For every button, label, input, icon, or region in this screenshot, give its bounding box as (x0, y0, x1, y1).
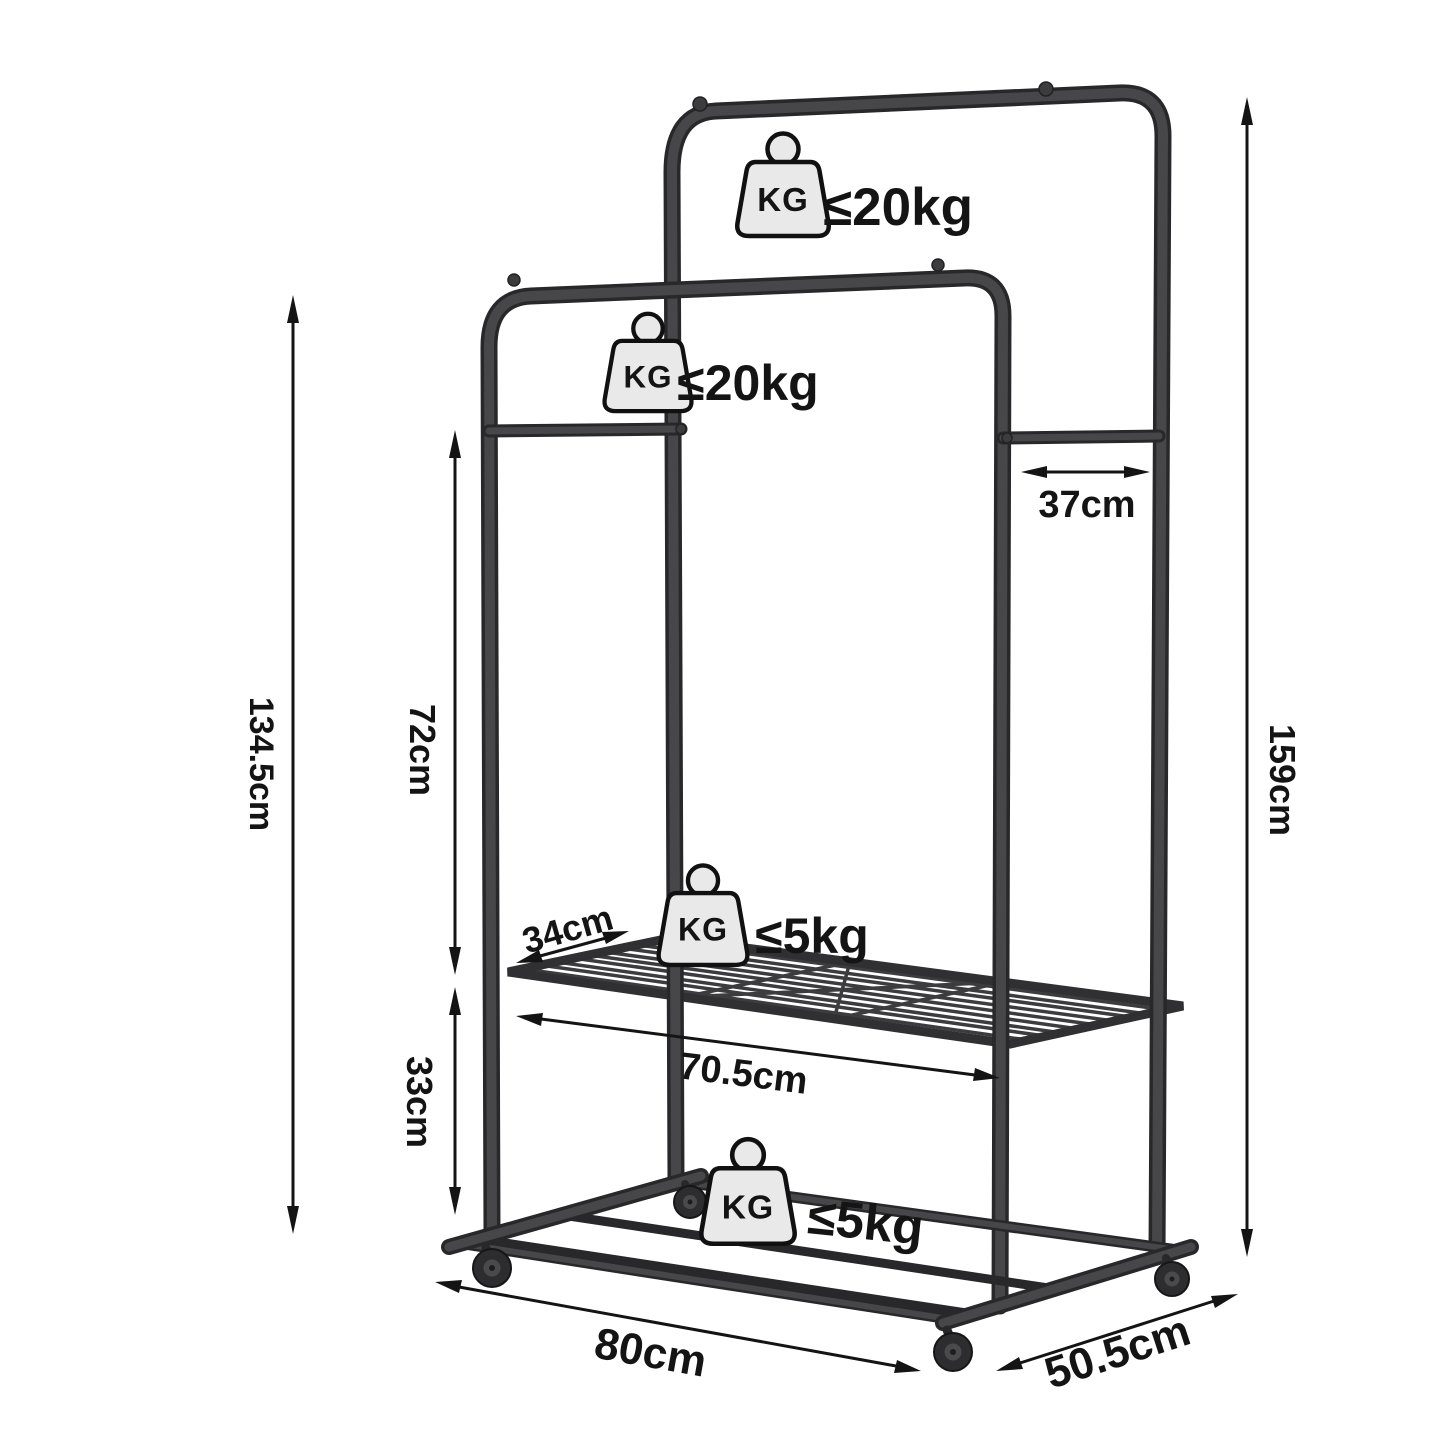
dim-base-depth-label: 50.5cm (1039, 1306, 1196, 1399)
side-crossbars (489, 424, 1159, 443)
dim-height-front-label: 134.5cm (242, 697, 280, 831)
rail-screw-knob (932, 259, 944, 271)
crossbar-screw (1002, 433, 1012, 443)
capacity-bottom-shelf-label: ≤5kg (805, 1187, 926, 1256)
kg-badge-text: KG (624, 359, 673, 394)
capacity-middle-shelf: KG ≤5kg (659, 865, 869, 964)
dim-top-depth-label: 37cm (1038, 484, 1135, 526)
kg-weight-icon: KG (737, 134, 829, 237)
dim-shelf-to-base: 33cm (399, 987, 461, 1215)
dim-height-front: 134.5cm (242, 295, 299, 1234)
rail-screw-knob (1039, 82, 1053, 96)
dim-shelf-width-label: 70.5cm (677, 1045, 810, 1102)
dim-height-back: 159cm (1241, 97, 1303, 1257)
capacity-top-rail: KG ≤20kg (737, 134, 973, 238)
capacity-top-rail-label: ≤20kg (823, 178, 973, 237)
dim-base-depth: 50.5cm (996, 1294, 1238, 1399)
kg-badge-text: KG (678, 912, 728, 948)
dim-shelf-to-base-label: 33cm (399, 1056, 440, 1148)
dim-height-back-label: 159cm (1262, 724, 1303, 836)
capacity-bottom-shelf: KG ≤5kg (701, 1139, 926, 1256)
dim-rail-to-shelf-label: 72cm (402, 704, 443, 796)
dim-rail-to-shelf: 72cm (402, 430, 461, 975)
dim-top-depth: 37cm (1021, 466, 1150, 526)
kg-weight-icon: KG (701, 1139, 794, 1244)
caster-front-left (473, 1248, 511, 1287)
capacity-lower-rail: KG ≤20kg (605, 314, 819, 411)
kg-badge-text: KG (722, 1189, 775, 1226)
rail-screw-knob (693, 97, 707, 111)
capacity-lower-rail-label: ≤20kg (677, 355, 818, 411)
rail-screw-knob (508, 274, 520, 286)
crossbar-screw (676, 424, 686, 434)
capacity-middle-shelf-label: ≤5kg (755, 908, 869, 964)
caster-front-right (934, 1330, 972, 1371)
garment-rack-dimension-diagram: KG ≤20kg KG ≤20kg KG ≤5kg KG ≤5kg 134.5 (0, 0, 1445, 1445)
kg-badge-text: KG (757, 181, 809, 218)
